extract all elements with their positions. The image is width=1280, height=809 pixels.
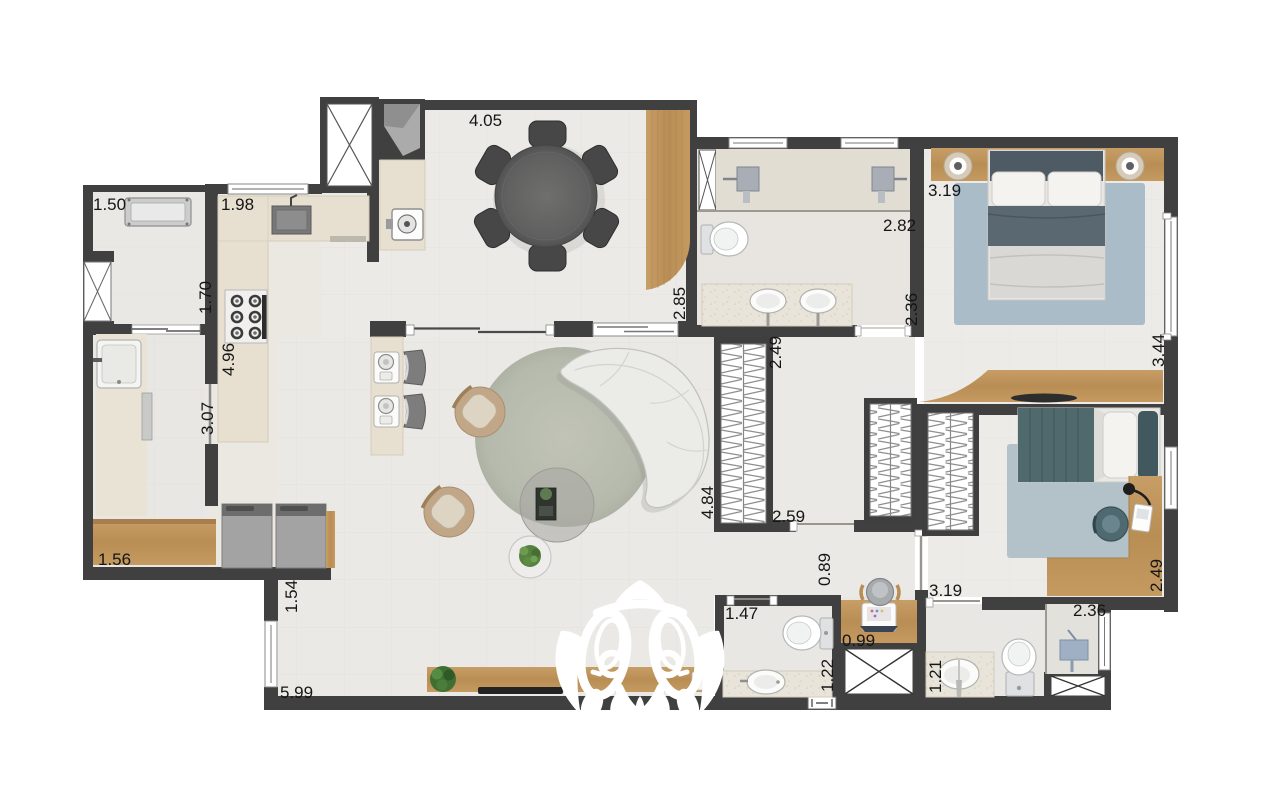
svg-text:2.49: 2.49 (766, 336, 785, 369)
svg-text:4.05: 4.05 (469, 111, 502, 130)
svg-text:5.99: 5.99 (280, 683, 313, 702)
svg-text:3.07: 3.07 (198, 402, 217, 435)
svg-text:1.70: 1.70 (196, 281, 215, 314)
svg-text:0.89: 0.89 (815, 553, 834, 586)
svg-text:4.84: 4.84 (698, 486, 717, 519)
svg-text:3.19: 3.19 (929, 581, 962, 600)
svg-text:4.96: 4.96 (219, 343, 238, 376)
svg-text:1.50: 1.50 (93, 195, 126, 214)
svg-text:1.98: 1.98 (221, 195, 254, 214)
svg-text:1.56: 1.56 (98, 550, 131, 569)
svg-text:2.59: 2.59 (772, 507, 805, 526)
svg-text:2.85: 2.85 (670, 287, 689, 320)
svg-text:1.47: 1.47 (725, 604, 758, 623)
svg-text:1.22: 1.22 (818, 659, 837, 692)
svg-text:3.19: 3.19 (928, 181, 961, 200)
svg-text:2.49: 2.49 (1147, 559, 1166, 592)
svg-text:1.21: 1.21 (926, 660, 945, 693)
svg-text:3.44: 3.44 (1149, 334, 1168, 367)
svg-text:2.82: 2.82 (883, 216, 916, 235)
svg-text:0.99: 0.99 (842, 631, 875, 650)
svg-text:2.36: 2.36 (1073, 601, 1106, 620)
svg-text:2.36: 2.36 (902, 293, 921, 326)
svg-text:1.54: 1.54 (282, 580, 301, 613)
